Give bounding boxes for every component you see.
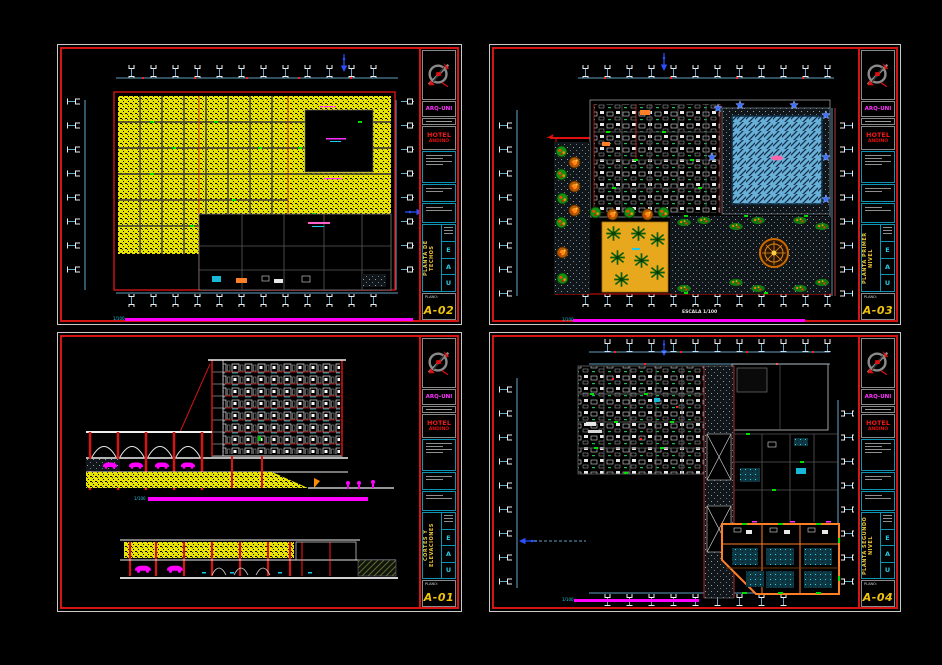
grid-bubbles-top xyxy=(120,65,392,78)
plant-icon xyxy=(631,226,646,241)
caption-bar xyxy=(574,599,699,602)
info-box xyxy=(861,439,895,471)
paving xyxy=(670,216,830,294)
drawing-title-box: PLANTA DE TECHOS E A U xyxy=(422,224,456,292)
drawing-title-vertical: CORTES Y ELEVACIONES xyxy=(423,513,441,578)
bed xyxy=(766,571,794,588)
tree-icon xyxy=(624,207,635,218)
sheet-a03[interactable]: 1/100 ESCALA 1/100 ARQ-UNI HOTEL ANDINO … xyxy=(489,44,901,325)
firm-name: ARQ-UNI xyxy=(422,101,456,117)
grid-bubbles-left xyxy=(67,98,80,290)
firm-logo xyxy=(861,50,895,100)
sheet-number-box: PLANO: A-02 xyxy=(422,293,456,320)
caption-scale: 1/100 xyxy=(562,598,574,602)
bush-icon xyxy=(793,217,807,224)
firm-logo xyxy=(422,338,456,388)
bush-icon xyxy=(815,223,829,230)
interior-furniture xyxy=(594,104,720,213)
bush-icon xyxy=(677,285,691,292)
project-name: HOTEL ANDINO xyxy=(422,414,456,438)
tower-section xyxy=(180,360,346,456)
tree-icon xyxy=(590,207,601,218)
tree-icon xyxy=(607,209,618,220)
bush-icon xyxy=(729,279,743,286)
bush-icon xyxy=(751,217,765,224)
car-icon xyxy=(181,463,195,469)
room-wing xyxy=(722,521,840,594)
grid-bubbles-bottom xyxy=(582,294,832,307)
info-box xyxy=(861,472,895,490)
car-icon xyxy=(135,566,151,573)
car-icon xyxy=(155,463,169,469)
tree-icon xyxy=(556,217,567,228)
grid-bubbles-bottom xyxy=(120,294,392,307)
grid-bubbles-right xyxy=(840,105,853,298)
tree-icon xyxy=(569,157,580,168)
caption-scale: 1/100 xyxy=(134,497,146,501)
car-icon xyxy=(167,566,183,573)
drawing-title-vertical: PLANTA PRIMER NIVEL xyxy=(862,225,880,291)
flag-icon xyxy=(314,478,320,488)
plant-icon xyxy=(634,253,649,268)
bush-icon xyxy=(677,219,691,226)
info-box xyxy=(422,184,456,202)
plant-icon xyxy=(610,250,625,265)
sheet-a01[interactable]: 1/100 ARQ-UNI HOTEL ANDINO CORTES Y ELEV… xyxy=(57,332,462,612)
sheet-number-box: PLANO: A-01 xyxy=(422,580,456,607)
project-name: HOTEL ANDINO xyxy=(422,126,456,150)
drawing-title-box: CORTES Y ELEVACIONES E A U xyxy=(422,512,456,579)
grid-bubbles-top xyxy=(582,65,832,78)
info-box xyxy=(861,184,895,202)
drawing-title-vertical: PLANTA SEGUNDO NIVEL xyxy=(862,513,880,578)
title-block: ARQ-UNI HOTEL ANDINO PLANTA SEGUNDO NIVE… xyxy=(858,337,896,607)
title-block: ARQ-UNI HOTEL ANDINO CORTES Y ELEVACIONE… xyxy=(419,337,457,607)
bed xyxy=(804,571,832,588)
ground-hatch xyxy=(86,472,308,488)
info-box xyxy=(861,151,895,183)
tree-icon xyxy=(557,193,568,204)
grid-bubbles-right xyxy=(841,398,854,590)
project-name: HOTEL ANDINO xyxy=(861,414,895,438)
drawing-sections xyxy=(62,338,420,606)
sheet-a02[interactable]: 1/100 ARQ-UNI HOTEL ANDINO PLANTA DE TEC… xyxy=(57,44,462,325)
plant-icon xyxy=(650,265,665,280)
stair xyxy=(707,434,731,480)
drawing-title-box: PLANTA SEGUNDO NIVEL E A U xyxy=(861,512,895,579)
info-box xyxy=(422,203,456,223)
sheet-number: A-03 xyxy=(862,304,894,317)
caption-scale: 1/100 xyxy=(562,318,574,322)
tree-icon xyxy=(556,169,567,180)
info-box xyxy=(861,203,895,223)
tree-icon xyxy=(556,146,567,157)
drawing-floor-plan xyxy=(494,338,859,606)
caption-bar xyxy=(573,319,805,322)
tree-icon xyxy=(557,247,568,258)
caption-bar xyxy=(148,497,368,501)
project-name: HOTEL ANDINO xyxy=(861,126,895,150)
bed xyxy=(804,548,832,565)
grid-bubbles-right xyxy=(401,98,414,290)
bush-icon xyxy=(793,285,807,292)
bush-icon xyxy=(815,279,829,286)
bed xyxy=(746,571,764,587)
tree-icon xyxy=(557,273,568,284)
drawing-site-plan xyxy=(494,50,859,318)
sheet-number: A-04 xyxy=(862,591,894,604)
drawing-title-box: PLANTA PRIMER NIVEL E A U xyxy=(861,224,895,292)
sheet-number-box: PLANO: A-04 xyxy=(861,580,895,607)
firm-name: ARQ-UNI xyxy=(422,389,456,405)
grid-bubbles-left xyxy=(499,374,512,590)
info-box xyxy=(422,439,456,471)
sheet-number: A-01 xyxy=(423,591,455,604)
grid-bubbles-left xyxy=(499,108,512,298)
plant-icon xyxy=(606,226,621,241)
firm-logo xyxy=(422,50,456,100)
sheet-number: A-02 xyxy=(423,304,455,317)
bed xyxy=(766,548,794,565)
drawing-title-vertical: PLANTA DE TECHOS xyxy=(423,225,441,291)
fountain xyxy=(760,239,788,267)
sheet-a04[interactable]: 1/100 ARQ-UNI HOTEL ANDINO PLANTA SEGUND… xyxy=(489,332,901,612)
firm-logo xyxy=(861,338,895,388)
info-box xyxy=(422,472,456,490)
caption-scale: 1/100 xyxy=(113,317,125,321)
car-icon xyxy=(129,463,143,469)
caption-bar xyxy=(125,318,413,321)
info-box xyxy=(422,491,456,511)
title-block: ARQ-UNI HOTEL ANDINO PLANTA DE TECHOS E … xyxy=(419,49,457,320)
grid-bubbles-top xyxy=(592,339,832,352)
bush-icon xyxy=(729,223,743,230)
bed xyxy=(732,548,758,565)
firm-name: ARQ-UNI xyxy=(861,101,895,117)
parking-elevation xyxy=(120,540,398,578)
title-block: ARQ-UNI HOTEL ANDINO PLANTA PRIMER NIVEL… xyxy=(858,49,896,320)
sheet-number-box: PLANO: A-03 xyxy=(861,293,895,320)
bush-icon xyxy=(751,285,765,292)
plant-icon xyxy=(650,232,665,247)
bush-icon xyxy=(697,217,711,224)
tree-icon xyxy=(569,205,580,216)
upper-rooms xyxy=(578,366,704,474)
info-box xyxy=(422,151,456,183)
firm-name: ARQ-UNI xyxy=(861,389,895,405)
caption-label: ESCALA 1/100 xyxy=(682,311,717,316)
drawing-roof-plan xyxy=(62,50,420,318)
tree-icon xyxy=(569,181,580,192)
tree-icon xyxy=(658,207,669,218)
info-box xyxy=(861,491,895,511)
tree-icon xyxy=(642,209,653,220)
plant-icon xyxy=(614,272,629,287)
